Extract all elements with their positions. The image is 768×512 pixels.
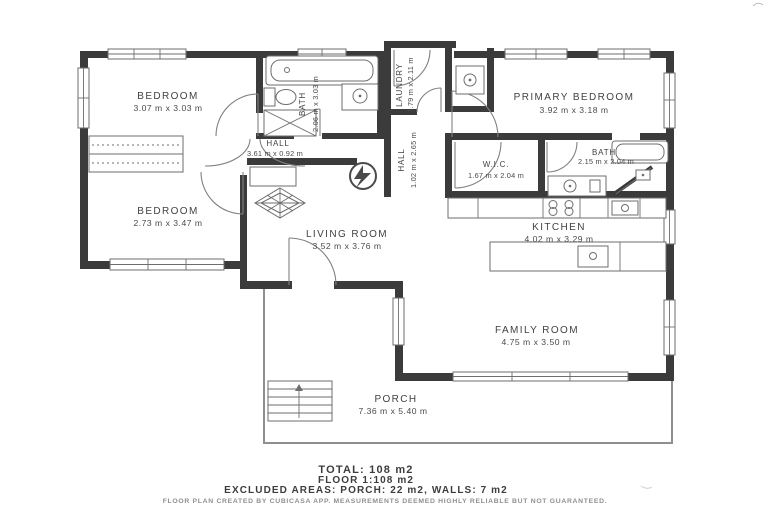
- window: [78, 68, 89, 128]
- kitchen-dims: 4.02 m x 3.29 m: [524, 234, 593, 244]
- hall2-dims: 1.02 m x 2.65 m: [409, 132, 418, 188]
- living-room-dims: 3.52 m x 3.76 m: [312, 241, 381, 251]
- floor-plan-page: BEDROOM 3.07 m x 3.03 m BATH 2.06 m x 3.…: [0, 0, 768, 512]
- porch-label: PORCH: [374, 394, 417, 405]
- electrical-panel-icon: [350, 163, 376, 189]
- summary-block: TOTAL: 108 m2 FLOOR 1:108 m2 EXCLUDED AR…: [163, 464, 608, 505]
- excluded-line: EXCLUDED AREAS: PORCH: 22 m2, WALLS: 7 m…: [224, 485, 508, 496]
- kitchen-label: KITCHEN: [532, 222, 586, 233]
- bedroom1-dims: 3.07 m x 3.03 m: [133, 103, 202, 113]
- wic-label: W.I.C.: [483, 160, 510, 169]
- bath1-dims: 2.06 m x 3.03 m: [311, 76, 320, 132]
- washer-icon: [456, 66, 484, 94]
- laundry-dims: 1.79 m x 2.11 m: [406, 57, 415, 112]
- sink-icon: [342, 84, 378, 110]
- bedroom1-door: [216, 94, 258, 136]
- bedroom2-dims: 2.73 m x 3.47 m: [133, 218, 202, 228]
- scan-artifact: [753, 3, 763, 6]
- bath2-label: BATH: [592, 148, 616, 157]
- floor-medallion-icon: [255, 188, 305, 218]
- kitchen-island: [490, 242, 666, 271]
- closet-icon: [89, 136, 183, 172]
- primary-bedroom-dims: 3.92 m x 3.18 m: [539, 105, 608, 115]
- wic-dims: 1.67 m x 2.04 m: [468, 171, 524, 180]
- window: [393, 298, 404, 345]
- family-room-label: FAMILY ROOM: [495, 325, 579, 336]
- hall1-label: HALL: [266, 139, 289, 148]
- bathtub-icon: [266, 56, 378, 85]
- disclaimer: FLOOR PLAN CREATED BY CUBICASA APP. MEAS…: [163, 498, 608, 505]
- toilet-icon: [264, 88, 296, 106]
- bedroom2-label: BEDROOM: [137, 206, 198, 217]
- hall2-label: HALL: [397, 148, 406, 171]
- shower-icon: [264, 110, 316, 136]
- scan-artifact: [641, 486, 652, 488]
- stairs-icon: [268, 381, 332, 421]
- laundry-label: LAUNDRY: [395, 63, 404, 107]
- window: [453, 372, 628, 381]
- window: [664, 300, 675, 355]
- porch-dims: 7.36 m x 5.40 m: [358, 406, 427, 416]
- vanity-sink-icon: [548, 176, 606, 196]
- bath1-label: BATH: [298, 92, 307, 116]
- bath2-door: [547, 142, 577, 172]
- floor-plan-image: BEDROOM 3.07 m x 3.03 m BATH 2.06 m x 3.…: [0, 0, 768, 512]
- living-room-label: LIVING ROOM: [306, 229, 388, 240]
- window: [110, 259, 224, 270]
- shower2-icon: [616, 168, 651, 194]
- hall-cabinet: [250, 167, 296, 186]
- kitchen-sink-icon: [612, 201, 638, 215]
- bath2-dims: 2.15 m x 2.04 m: [578, 157, 634, 166]
- bedroom1-label: BEDROOM: [137, 91, 198, 102]
- family-room-dims: 4.75 m x 3.50 m: [501, 337, 570, 347]
- window: [108, 49, 186, 59]
- window: [598, 49, 650, 59]
- bedroom2-door: [201, 172, 243, 214]
- window: [505, 49, 567, 59]
- hall1-dims: 3.61 m x 0.92 m: [247, 149, 303, 158]
- primary-bedroom-label: PRIMARY BEDROOM: [514, 92, 635, 103]
- window: [664, 73, 675, 128]
- laundry-door: [417, 88, 441, 112]
